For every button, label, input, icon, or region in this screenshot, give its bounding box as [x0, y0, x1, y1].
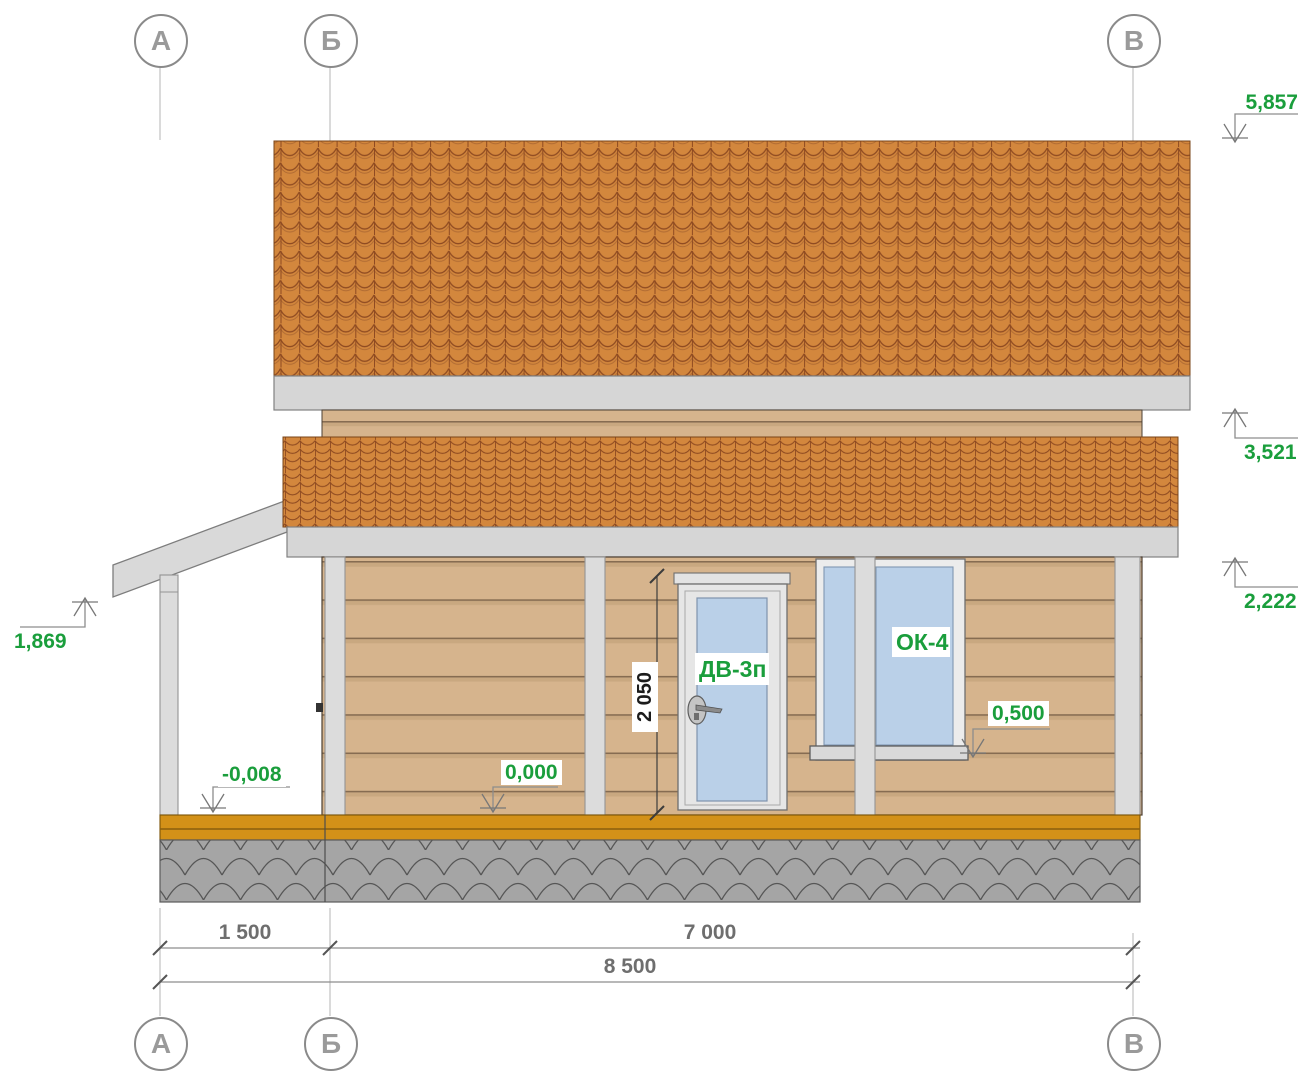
- axis-bubble-b-top: Б: [304, 14, 358, 68]
- upper-roof: [274, 141, 1190, 376]
- dim-label-1500: 1 500: [195, 921, 295, 945]
- elevation-label-0500: 0,500: [988, 701, 1049, 726]
- door-glass: [697, 598, 767, 801]
- elevation-label-2222: 2,222: [1244, 589, 1300, 614]
- corner-trim-left: [325, 557, 345, 815]
- lower-roof: [283, 437, 1178, 527]
- dim-label-8500: 8 500: [580, 955, 680, 979]
- dim-label-7000: 7 000: [660, 921, 760, 945]
- marker-5857: [1222, 114, 1298, 142]
- marker-1869: [20, 598, 98, 627]
- window-sill: [810, 746, 968, 760]
- drawing-layer: [0, 0, 1309, 1080]
- axis-bubble-a-top: А: [134, 14, 188, 68]
- elevation-label-3521: 3,521: [1244, 440, 1300, 465]
- marker-3521: [1222, 409, 1298, 438]
- elevation-label-m0008: -0,008: [218, 762, 286, 787]
- corner-trim-right: [1115, 557, 1140, 815]
- window-glass-left: [824, 567, 856, 745]
- foundation: [160, 840, 1140, 902]
- axis-bubble-v-top: В: [1107, 14, 1161, 68]
- door-height-value: 2 050: [632, 662, 658, 732]
- door-head-trim: [674, 573, 790, 584]
- axis-bubble-v-bottom: В: [1107, 1017, 1161, 1071]
- door-tag: ДВ-3п: [695, 653, 769, 685]
- wall-fixture-mark: [316, 703, 323, 712]
- axis-bubble-a-bottom: А: [134, 1017, 188, 1071]
- wall-post-window: [855, 557, 875, 815]
- elevation-drawing: А Б В А Б В 5,857 3,521 2,222 1,869 0,50…: [0, 0, 1309, 1080]
- porch-roof: [113, 500, 287, 597]
- window-tag: ОК-4: [892, 627, 950, 657]
- entrance-door: [674, 573, 790, 810]
- elevation-label-5857: 5,857: [1240, 90, 1298, 115]
- marker-2222: [1222, 558, 1298, 587]
- upper-fascia-board: [274, 376, 1190, 410]
- porch-post: [160, 575, 178, 815]
- wall-post-left: [585, 557, 605, 815]
- marker-m0008: [200, 787, 290, 812]
- elevation-label-0000: 0,000: [501, 760, 562, 785]
- elevation-label-1869: 1,869: [14, 629, 67, 654]
- upper-wall-siding: [322, 410, 1142, 437]
- lower-fascia-board: [287, 527, 1178, 557]
- window-ok4: [810, 559, 968, 760]
- axis-bubble-b-bottom: Б: [304, 1017, 358, 1071]
